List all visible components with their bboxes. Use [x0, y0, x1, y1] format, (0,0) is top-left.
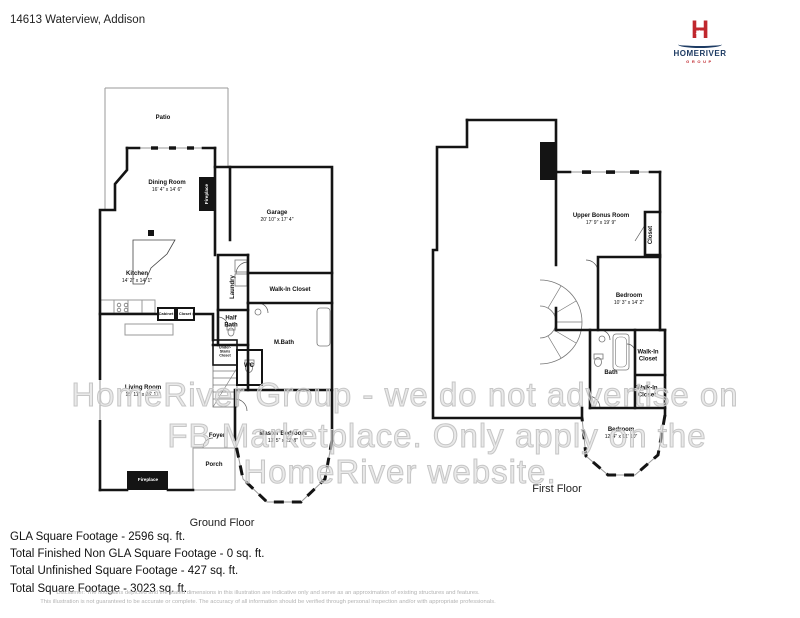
room-label-fireplace-living: Fireplace	[138, 477, 158, 484]
room-label-fireplace-dining: Fireplace	[204, 184, 211, 204]
room-label-bedroom2: Bedroom 12' 4" x 11' 10"	[605, 427, 638, 440]
room-label-laundry: Laundry	[230, 275, 237, 299]
room-label-walk-in-closet: Walk-In Closet	[269, 287, 310, 294]
floorplan-page: 14613 Waterview, Addison H HOMERIVER GRO…	[0, 0, 800, 618]
kitchen-island-post	[148, 230, 154, 236]
room-label-under-stairs-closet: Under-Stairs Closet	[217, 346, 234, 359]
room-label-wc: WC	[244, 363, 254, 370]
room-label-m-bath: M.Bath	[274, 340, 294, 347]
non-gla-square-footage: Total Finished Non GLA Square Footage - …	[10, 546, 264, 563]
unfinished-square-footage: Total Unfinished Square Footage - 427 sq…	[10, 563, 264, 580]
square-footage-summary: GLA Square Footage - 2596 sq. ft. Total …	[10, 529, 264, 598]
page-title: 14613 Waterview, Addison	[10, 14, 145, 26]
room-label-half-bath: Half Bath	[222, 316, 240, 329]
room-label-living: Living Room 15' 11" x 26' 11"	[125, 385, 161, 398]
room-label-porch: Porch	[205, 462, 222, 469]
room-label-master: Master Bedroom 13' 5" x 22' 8"	[259, 431, 306, 444]
room-label-bedroom1: Bedroom 10' 3" x 14' 2"	[614, 293, 644, 306]
room-label-closet-kitchen: Closet	[179, 312, 191, 317]
room-label-foyer: Foyer	[209, 433, 225, 440]
room-label-wic-lower: Walk-In Closet	[634, 386, 660, 399]
house-icon	[697, 34, 704, 39]
disclaimer-line-1: Disclaimer: The floorplans depicted and …	[12, 589, 524, 598]
first-floor-walls	[430, 60, 680, 490]
room-label-cabinet: Cabinet	[159, 312, 174, 317]
logo-name: HOMERIVER	[664, 49, 736, 58]
disclaimer: Disclaimer: The floorplans depicted and …	[12, 589, 524, 607]
room-label-closet-first: Closet	[648, 226, 655, 244]
room-label-bonus: Upper Bonus Room 17' 9" x 19' 9"	[573, 213, 629, 226]
first-floor-title: First Floor	[532, 483, 582, 495]
disclaimer-line-2: This illustration is not guaranteed to b…	[12, 598, 524, 607]
gla-square-footage: GLA Square Footage - 2596 sq. ft.	[10, 529, 264, 546]
room-label-garage: Garage 20' 10" x 17' 4"	[261, 210, 294, 223]
room-label-dining: Dining Room 16' 4" x 14' 6"	[148, 180, 185, 193]
ground-floor-title: Ground Floor	[190, 517, 255, 529]
room-label-kitchen: Kitchen 14' 2" x 14' 1"	[122, 271, 152, 284]
room-label-patio: Patio	[156, 115, 171, 122]
homeriver-logo: H HOMERIVER GROUP	[664, 18, 736, 64]
logo-h-icon: H	[691, 18, 709, 42]
room-label-bath: Bath	[604, 370, 617, 377]
room-label-wic-upper: Walk-In Closet	[635, 350, 661, 363]
chimney-box	[540, 142, 556, 180]
